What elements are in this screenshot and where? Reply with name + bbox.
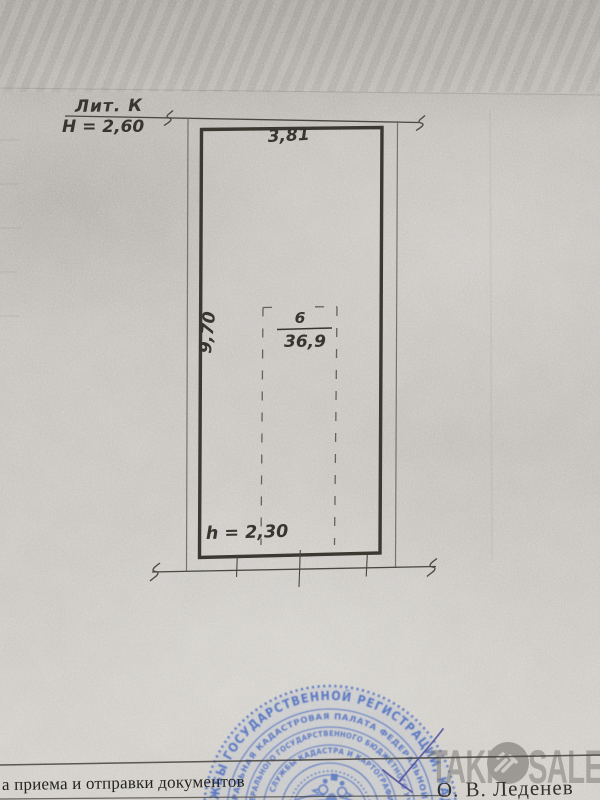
inner-height-label: h = 2,30: [206, 522, 289, 544]
document-content: Лит. К Н = 2,60 3,81 9,70 6 36,9 h = 2,3…: [0, 0, 600, 800]
signer-name: О. В. Леденев: [437, 775, 574, 800]
room-area: 36,9: [284, 332, 326, 352]
scanned-document-page: Лит. К Н = 2,60 3,81 9,70 6 36,9 h = 2,3…: [0, 0, 600, 800]
break-mark-icon: [427, 559, 437, 577]
left-extension-line: [187, 118, 189, 572]
floor-plan: Лит. К Н = 2,60 3,81 9,70 6 36,9 h = 2,3…: [62, 96, 437, 587]
footer-left-text: а приема и отправки документов: [2, 772, 245, 794]
wall-tick: [237, 557, 238, 578]
width-dimension: 3,81: [267, 125, 310, 147]
right-extension-line: [396, 121, 398, 568]
building-height-label: Н = 2,60: [62, 117, 144, 137]
wall-tick: [366, 555, 367, 577]
building-letter-label: Лит. К: [74, 96, 144, 117]
crown-center: [330, 773, 338, 781]
room-number: 6: [295, 309, 306, 327]
